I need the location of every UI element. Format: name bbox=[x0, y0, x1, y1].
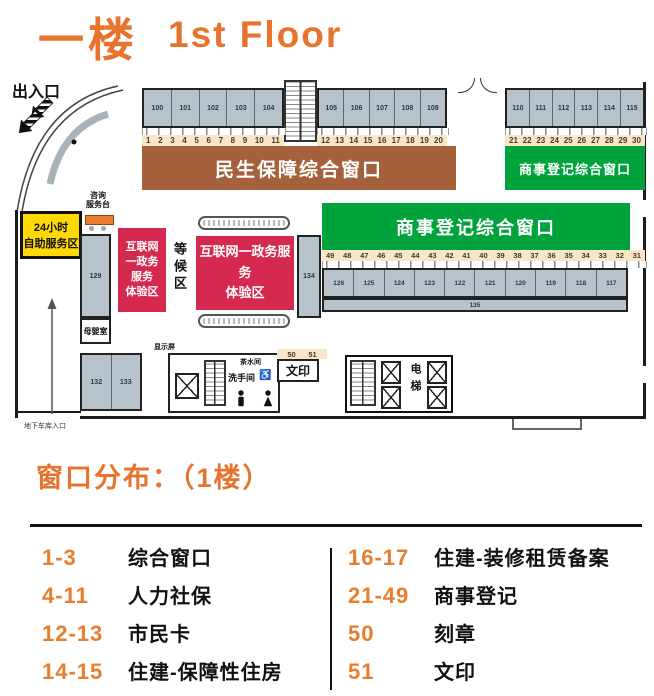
legend-rule bbox=[30, 524, 642, 527]
internet-zone-large: 互联网一政务服务 体验区 bbox=[196, 236, 294, 310]
window-number: 25 bbox=[564, 136, 573, 145]
legend-divider bbox=[330, 548, 332, 690]
window-number: 18 bbox=[406, 136, 415, 145]
room-cell: 119 bbox=[536, 270, 566, 296]
elevator-label: 电梯 bbox=[407, 363, 423, 397]
legend-row: 12-13 市民卡 bbox=[42, 618, 324, 647]
window-number: 34 bbox=[581, 251, 589, 260]
window-number: 20 bbox=[434, 136, 443, 145]
legend-row: 1-3 综合窗口 bbox=[42, 542, 324, 571]
room-cell: 113 bbox=[575, 90, 598, 126]
legend-row: 4-11 人力社保 bbox=[42, 580, 324, 609]
male-icon bbox=[236, 390, 246, 407]
room-cell: 105 bbox=[319, 90, 344, 126]
counter-strip bbox=[317, 128, 449, 135]
room-cell: 118 bbox=[566, 270, 596, 296]
window-number: 39 bbox=[496, 251, 504, 260]
desk-stool-icon bbox=[89, 226, 94, 231]
window-number: 48 bbox=[343, 251, 351, 260]
legend-label: 刻章 bbox=[434, 618, 476, 647]
room-cell: 121 bbox=[475, 270, 505, 296]
rooms-top-right: 110111112113114115 bbox=[505, 88, 645, 128]
window-number: 19 bbox=[420, 136, 429, 145]
legend-range: 14-15 bbox=[42, 659, 128, 685]
window-number: 38 bbox=[513, 251, 521, 260]
window-numbers-1-11: 1234567891011 bbox=[142, 135, 284, 146]
counter-strip bbox=[505, 128, 647, 135]
legend-row: 21-49 商事登记 bbox=[348, 580, 648, 609]
legend-range: 16-17 bbox=[348, 545, 434, 571]
elevator-shaft-icon bbox=[427, 386, 447, 409]
window-number: 6 bbox=[206, 136, 210, 145]
window-number: 43 bbox=[428, 251, 436, 260]
window-number: 31 bbox=[633, 251, 641, 260]
room-cell: 111 bbox=[530, 90, 553, 126]
waiting-area-label: 等候区 bbox=[170, 242, 189, 293]
room-cell: 102 bbox=[200, 90, 228, 126]
legend-range: 21-49 bbox=[348, 583, 434, 609]
window-number: 26 bbox=[577, 136, 586, 145]
banner-commerce-mid: 商事登记综合窗口 bbox=[322, 203, 630, 250]
counter-strip bbox=[142, 128, 286, 135]
female-icon bbox=[263, 390, 273, 407]
legend-label: 市民卡 bbox=[128, 618, 191, 647]
window-number: 46 bbox=[377, 251, 385, 260]
room-cell: 101 bbox=[172, 90, 200, 126]
desk-stool-icon bbox=[101, 226, 106, 231]
legend-label: 住建-装修租赁备案 bbox=[434, 542, 610, 571]
window-numbers-49-31: 49484746454443424140393837363534333231 bbox=[322, 250, 645, 261]
right-wall-door-gap bbox=[642, 366, 647, 383]
room-cell: 122 bbox=[445, 270, 475, 296]
window-number: 7 bbox=[219, 136, 223, 145]
rooms-mid: 126125124123122121120119118117 bbox=[322, 268, 628, 298]
window-numbers-12-20: 121314151617181920 bbox=[317, 135, 447, 146]
floor-guide-page: 一楼 1st Floor 出入口 bbox=[0, 0, 654, 696]
window-number: 47 bbox=[360, 251, 368, 260]
rooms-bottom-left: 132133 bbox=[80, 353, 142, 411]
tea-room-label: 茶水间 bbox=[240, 359, 261, 367]
banner-minsheng: 民生保障综合窗口 bbox=[142, 146, 456, 190]
window-number: 24 bbox=[550, 136, 559, 145]
window-number: 1 bbox=[146, 136, 150, 145]
consult-desk-label: 咨询 服务台 bbox=[86, 191, 110, 209]
window-number: 14 bbox=[349, 136, 358, 145]
window-number: 40 bbox=[479, 251, 487, 260]
room-cell: 109 bbox=[421, 90, 445, 126]
page-title-en: 1st Floor bbox=[168, 14, 342, 56]
room-cell: 103 bbox=[227, 90, 255, 126]
window-number: 21 bbox=[509, 136, 518, 145]
escalator-icon bbox=[198, 314, 290, 328]
window-number: 28 bbox=[605, 136, 614, 145]
restroom-label: 洗手间 bbox=[228, 373, 255, 383]
window-number: 50 bbox=[287, 350, 295, 359]
window-number: 11 bbox=[271, 136, 279, 145]
window-number: 17 bbox=[392, 136, 401, 145]
room-cell: 125 bbox=[354, 270, 384, 296]
elevator-shaft-icon bbox=[427, 361, 447, 384]
window-number: 2 bbox=[158, 136, 162, 145]
rear-entry-recess bbox=[512, 419, 582, 430]
elevator-shaft-icon bbox=[175, 373, 199, 399]
legend-row: 51 文印 bbox=[348, 656, 648, 685]
window-number: 44 bbox=[411, 251, 419, 260]
window-number: 22 bbox=[523, 136, 532, 145]
window-number: 9 bbox=[243, 136, 247, 145]
window-number: 35 bbox=[564, 251, 572, 260]
room-129: 129 bbox=[80, 234, 111, 318]
garage-direction-arrow bbox=[44, 298, 60, 416]
escalator-icon bbox=[198, 216, 290, 230]
room-cell: 115 bbox=[621, 90, 643, 126]
window-number: 12 bbox=[321, 136, 330, 145]
legend-row: 50 刻章 bbox=[348, 618, 648, 647]
window-number: 32 bbox=[616, 251, 624, 260]
legend-range: 12-13 bbox=[42, 621, 128, 647]
room-cell: 132 bbox=[82, 355, 112, 409]
room-cell: 120 bbox=[506, 270, 536, 296]
window-number: 45 bbox=[394, 251, 402, 260]
legend-range: 50 bbox=[348, 621, 434, 647]
internet-zone-small: 互联网 一政务 服务 体验区 bbox=[118, 228, 166, 312]
rooms-top-mid: 105106107108109 bbox=[317, 88, 447, 128]
legend-label: 综合窗口 bbox=[128, 542, 212, 571]
room-cell: 114 bbox=[598, 90, 621, 126]
window-number: 4 bbox=[182, 136, 186, 145]
self-service-label: 24小时 自助服务区 bbox=[24, 219, 79, 251]
consult-desk-icon bbox=[85, 215, 114, 225]
legend-row: 14-15 住建-保障性住房 bbox=[42, 656, 324, 685]
room-135: 135 bbox=[322, 298, 628, 312]
page-title-cn: 一楼 bbox=[38, 4, 138, 70]
counter-strip bbox=[322, 261, 647, 268]
room-cell: 104 bbox=[255, 90, 282, 126]
window-number: 10 bbox=[255, 136, 264, 145]
print-window-numbers: 5051 bbox=[277, 349, 327, 359]
left-wall bbox=[15, 210, 18, 418]
garage-entrance-label: 地下车库入口 bbox=[24, 421, 66, 431]
window-number: 23 bbox=[536, 136, 545, 145]
elevator-shaft-icon bbox=[381, 386, 401, 409]
entrance-arrows-icon bbox=[16, 96, 64, 148]
room-cell: 110 bbox=[507, 90, 530, 126]
window-number: 36 bbox=[547, 251, 555, 260]
window-number: 8 bbox=[231, 136, 235, 145]
window-numbers-21-30: 21222324252627282930 bbox=[505, 135, 645, 146]
legend-range: 1-3 bbox=[42, 545, 128, 571]
room-cell: 123 bbox=[415, 270, 445, 296]
wheelchair-icon: ♿ bbox=[259, 370, 271, 381]
legend-title: 窗口分布：（1楼） bbox=[36, 456, 272, 495]
window-number: 41 bbox=[462, 251, 470, 260]
legend-label: 文印 bbox=[434, 656, 476, 685]
window-number: 15 bbox=[363, 136, 372, 145]
window-number: 13 bbox=[335, 136, 344, 145]
window-number: 5 bbox=[194, 136, 198, 145]
self-service-area: 24小时 自助服务区 bbox=[20, 211, 82, 259]
nursing-room: 母婴室 bbox=[80, 318, 111, 344]
print-room: 文印 bbox=[277, 359, 319, 382]
window-number: 3 bbox=[170, 136, 174, 145]
window-number: 33 bbox=[599, 251, 607, 260]
staircase-top-icon bbox=[284, 80, 317, 142]
legend-label: 住建-保障性住房 bbox=[128, 656, 283, 685]
window-number: 37 bbox=[530, 251, 538, 260]
room-cell: 133 bbox=[112, 355, 141, 409]
room-cell: 100 bbox=[144, 90, 172, 126]
door-arc-icon bbox=[458, 78, 475, 93]
legend-column-right: 16-17 住建-装修租赁备案 21-49 商事登记 50 刻章 51 文印 bbox=[348, 542, 648, 685]
legend-column-left: 1-3 综合窗口 4-11 人力社保 12-13 市民卡 14-15 住建-保障… bbox=[42, 542, 324, 685]
legend-label: 人力社保 bbox=[128, 580, 212, 609]
legend-range: 51 bbox=[348, 659, 434, 685]
room-cell: 107 bbox=[370, 90, 395, 126]
legend-label: 商事登记 bbox=[434, 580, 518, 609]
room-cell: 124 bbox=[385, 270, 415, 296]
staircase-elevator-icon bbox=[350, 360, 376, 406]
legend-range: 4-11 bbox=[42, 583, 128, 609]
floor-plan: 出入口 100101102103104 bbox=[0, 70, 654, 462]
legend-row: 16-17 住建-装修租赁备案 bbox=[348, 542, 648, 571]
room-cell: 108 bbox=[395, 90, 420, 126]
room-cell: 106 bbox=[344, 90, 369, 126]
room-cell: 126 bbox=[324, 270, 354, 296]
window-number: 29 bbox=[618, 136, 627, 145]
display-screen-label: 显示屏 bbox=[154, 344, 175, 352]
door-arc-icon bbox=[480, 78, 497, 93]
room-134: 134 bbox=[297, 235, 321, 318]
elevator-shaft-icon bbox=[381, 361, 401, 384]
window-number: 49 bbox=[326, 251, 334, 260]
banner-commerce-top: 商事登记综合窗口 bbox=[505, 146, 645, 190]
window-number: 27 bbox=[591, 136, 600, 145]
window-number: 16 bbox=[378, 136, 387, 145]
window-number: 30 bbox=[632, 136, 641, 145]
window-number: 42 bbox=[445, 251, 453, 260]
rooms-top-left: 100101102103104 bbox=[142, 88, 284, 128]
right-wall-door-gap bbox=[642, 200, 647, 217]
room-cell: 117 bbox=[597, 270, 626, 296]
room-cell: 112 bbox=[553, 90, 576, 126]
staircase-bottom-icon bbox=[204, 360, 226, 406]
window-number: 51 bbox=[308, 350, 316, 359]
